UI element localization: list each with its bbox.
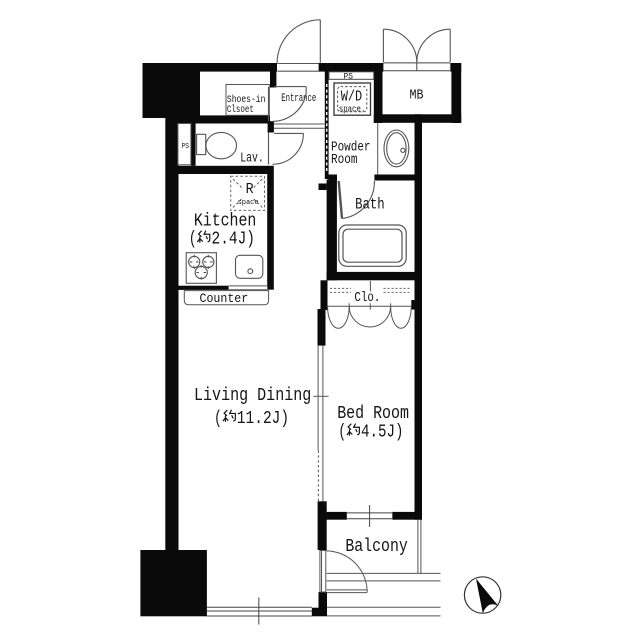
svg-text:Clo.: Clo. (354, 290, 380, 306)
svg-text:2.4J): 2.4J) (212, 230, 256, 250)
svg-text:PS: PS (182, 143, 190, 151)
svg-text:space: space (238, 199, 259, 207)
svg-text:Living Dining: Living Dining (194, 386, 311, 406)
svg-text:PS: PS (344, 72, 354, 81)
svg-text:11.2J): 11.2J) (237, 409, 289, 429)
svg-text:space.: space. (339, 104, 366, 114)
svg-text:W/D: W/D (341, 90, 363, 106)
svg-text:Entrance: Entrance (281, 93, 316, 105)
svg-text:(: ( (338, 423, 346, 443)
svg-text:MB: MB (410, 88, 424, 104)
svg-text:Counter: Counter (200, 292, 249, 306)
svg-text:Bath: Bath (355, 195, 385, 213)
svg-text:R: R (246, 181, 254, 198)
svg-text:(: ( (189, 230, 197, 250)
svg-text:Lav.: Lav. (240, 151, 263, 167)
svg-text:Room: Room (331, 153, 358, 168)
svg-text:Kitchen: Kitchen (194, 211, 256, 231)
svg-text:4.5J): 4.5J) (361, 423, 404, 443)
svg-text:Balcony: Balcony (345, 537, 408, 557)
svg-text:Bed Room: Bed Room (337, 404, 409, 424)
svg-text:(: ( (214, 409, 222, 429)
svg-text:Clsoet: Clsoet (227, 104, 254, 116)
